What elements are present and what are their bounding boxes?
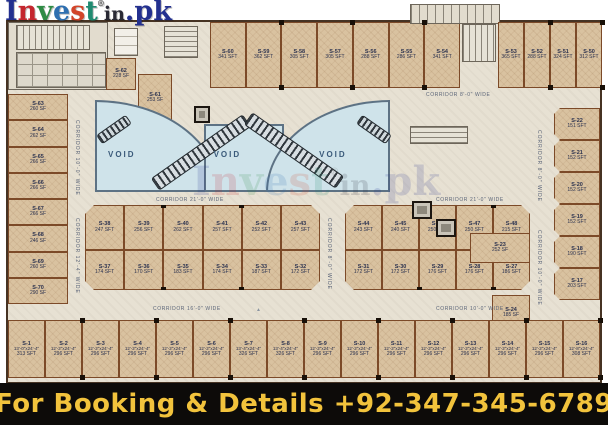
left-shop-column: S-63 260 SF S-64 262 SF S-65 266 SF S-66… bbox=[8, 94, 68, 304]
middle-band-left: S-38 247 SFT S-39 256 SFT S-40 262 SFT S… bbox=[85, 205, 320, 290]
shop-unit: S-5 12'-2"x24'-4" 296 SFT bbox=[156, 320, 193, 378]
shop-area: 305 SFT bbox=[290, 55, 309, 61]
shop-area: 172 SFT bbox=[354, 270, 373, 276]
logo-letter: . bbox=[125, 0, 134, 27]
shop-area: 365 SFT bbox=[501, 55, 520, 61]
shop-area: 296 SFT bbox=[91, 352, 110, 358]
shop-unit: S-41 257 SFT bbox=[203, 205, 242, 250]
shop-area: 326 SFT bbox=[276, 352, 295, 358]
shop-area: 172 SFT bbox=[391, 270, 410, 276]
logo-letter: I bbox=[5, 0, 18, 27]
void-label: VOID bbox=[108, 150, 136, 159]
shop-area: 257 SFT bbox=[291, 228, 310, 234]
shop-unit: S-51 324 SFT bbox=[550, 22, 576, 88]
shop-unit: S-66 266 SF bbox=[8, 173, 68, 199]
corridor-label: CORRIDOR 10'-0" WIDE bbox=[436, 306, 504, 312]
shop-area: 288 SFT bbox=[361, 55, 380, 61]
logo-letter: i bbox=[104, 3, 111, 25]
shop-unit: S-34 174 SFT bbox=[203, 250, 242, 290]
shop-unit: S-67 266 SF bbox=[8, 199, 68, 225]
shop-area: 296 SFT bbox=[461, 352, 480, 358]
shop-unit: S-6 12'-2"x24'-4" 296 SFT bbox=[193, 320, 230, 378]
shop-unit: S-19 152 SFT bbox=[554, 204, 600, 236]
shop-unit: S-63 260 SF bbox=[8, 94, 68, 120]
shop-area: 170 SFT bbox=[134, 270, 153, 276]
logo-letter: s bbox=[70, 0, 85, 27]
shop-area: 240 SFT bbox=[391, 228, 410, 234]
shop-area: 176 SFT bbox=[465, 270, 484, 276]
shop-unit: S-42 252 SFT bbox=[242, 205, 281, 250]
void-label: VOID bbox=[214, 150, 242, 159]
shop-unit: S-21 152 SFT bbox=[554, 140, 600, 172]
shop-area: 296 SFT bbox=[424, 352, 443, 358]
shop-area: 266 SF bbox=[30, 160, 46, 166]
shop-unit: S-10 12'-2"x24'-4" 296 SFT bbox=[341, 320, 378, 378]
shop-unit: S-38 247 SFT bbox=[85, 205, 124, 250]
corridor-label: CORRIDOR 12'-4" WIDE bbox=[74, 218, 80, 294]
shop-unit: S-37 174 SFT bbox=[85, 250, 124, 290]
shop-area: 290 SF bbox=[30, 291, 46, 297]
shop-unit: S-58 305 SFT bbox=[281, 22, 317, 88]
washrooms bbox=[16, 52, 106, 88]
shop-area: 341 SFT bbox=[218, 55, 237, 61]
shop-unit: S-36 170 SFT bbox=[124, 250, 163, 290]
shop-area: 174 SFT bbox=[213, 270, 232, 276]
shop-unit: S-1 13'-0"x24'-4" 313 SFT bbox=[8, 320, 45, 378]
shop-area: 257 SFT bbox=[213, 228, 232, 234]
right-shop-column: S-22 151 SFT S-21 152 SFT S-20 152 SFT S… bbox=[554, 108, 600, 300]
logo-letter: k bbox=[153, 0, 172, 27]
shop-area: 313 SFT bbox=[17, 352, 36, 358]
floor-plan: S-62 228 SF S-61 253 SF S-60 341 SFT S-5… bbox=[6, 20, 602, 384]
shop-unit: S-11 12'-2"x24'-4" 296 SFT bbox=[378, 320, 415, 378]
shop-unit: S-60 341 SFT bbox=[210, 22, 246, 88]
shop-unit: S-55 286 SFT bbox=[389, 22, 425, 88]
shop-area: 185 SF bbox=[503, 313, 519, 319]
shop-unit: S-23 252 SF bbox=[470, 233, 530, 263]
shop-area: 172 SFT bbox=[291, 270, 310, 276]
shop-unit: S-56 288 SFT bbox=[353, 22, 389, 88]
shop-area: 312 SFT bbox=[579, 55, 598, 61]
shop-area: 253 SF bbox=[147, 98, 163, 104]
shop-area: 190 SFT bbox=[567, 252, 586, 258]
shop-area: 256 SFT bbox=[134, 228, 153, 234]
void-label: VOID bbox=[319, 150, 347, 159]
shop-area: 296 SFT bbox=[202, 352, 221, 358]
shop-area: 151 SFT bbox=[567, 124, 586, 130]
shop-area: 260 SF bbox=[30, 265, 46, 271]
shop-unit: S-9 12'-2"x24'-4" 296 SFT bbox=[304, 320, 341, 378]
shop-unit: S-2 12'-2"x24'-4" 296 SFT bbox=[45, 320, 82, 378]
shop-unit: S-31 172 SFT bbox=[345, 250, 382, 290]
corridor-label: CORRIDOR 21'-0" WIDE bbox=[436, 197, 504, 203]
lift bbox=[436, 219, 456, 237]
north-arrow-icon: ▲ bbox=[256, 307, 261, 313]
shop-area: 296 SFT bbox=[165, 352, 184, 358]
top-shop-row: S-60 341 SFT S-59 362 SFT S-58 305 SFT S… bbox=[210, 22, 460, 88]
shop-unit: S-64 262 SF bbox=[8, 120, 68, 146]
shop-area: 252 SFT bbox=[252, 228, 271, 234]
shop-unit: S-15 12'-2"x24'-4" 296 SFT bbox=[526, 320, 563, 378]
staircase bbox=[16, 25, 90, 50]
shop-area: 326 SFT bbox=[239, 352, 258, 358]
shop-unit: S-20 152 SFT bbox=[554, 172, 600, 204]
service-room bbox=[114, 28, 138, 56]
shop-unit: S-57 305 SFT bbox=[317, 22, 353, 88]
logo-letter: n bbox=[18, 0, 38, 27]
top-shop-row-right: S-53 365 SFT S-52 288 SFT S-51 324 SFT S… bbox=[498, 22, 602, 88]
shop-unit: S-44 243 SFT bbox=[345, 205, 382, 250]
shop-area: 152 SFT bbox=[567, 156, 586, 162]
shop-area: 341 SFT bbox=[433, 55, 452, 61]
shop-unit: S-29 176 SFT bbox=[419, 250, 456, 290]
corridor-label: CORRIDOR 8'-0" WIDE bbox=[326, 218, 332, 290]
shop-area: 183 SFT bbox=[173, 270, 192, 276]
shop-unit: S-12 12'-2"x24'-4" 296 SFT bbox=[415, 320, 452, 378]
shop-area: 296 SFT bbox=[313, 352, 332, 358]
shop-unit: S-18 190 SFT bbox=[554, 236, 600, 268]
shop-area: 174 SFT bbox=[95, 270, 114, 276]
shop-area: 296 SFT bbox=[350, 352, 369, 358]
shop-area: 262 SFT bbox=[173, 228, 192, 234]
corridor-label: CORRIDOR 10'-0" WIDE bbox=[74, 120, 80, 196]
bottom-shop-row: S-1 13'-0"x24'-4" 313 SFT S-2 12'-2"x24'… bbox=[8, 320, 600, 378]
shop-unit: S-53 365 SFT bbox=[498, 22, 524, 88]
shop-unit: S-13 12'-2"x24'-4" 296 SFT bbox=[452, 320, 489, 378]
shop-unit: S-43 257 SFT bbox=[281, 205, 320, 250]
shop-area: 246 SF bbox=[30, 239, 46, 245]
shop-unit: S-35 183 SFT bbox=[163, 250, 202, 290]
logo-letter: v bbox=[37, 0, 53, 27]
shop-unit: S-17 203 SFT bbox=[554, 268, 600, 300]
shop-area: 228 SF bbox=[113, 74, 129, 80]
shop-area: 266 SF bbox=[30, 186, 46, 192]
shop-area: 288 SFT bbox=[527, 55, 546, 61]
lift bbox=[194, 106, 210, 123]
corridor-label: CORRIDOR 10'-0" WIDE bbox=[536, 230, 542, 306]
shop-unit: S-68 246 SF bbox=[8, 225, 68, 251]
shop-area: 243 SFT bbox=[354, 228, 373, 234]
shop-unit: S-62 228 SF bbox=[106, 58, 136, 90]
corridor-label: CORRIDOR 8'-0" WIDE bbox=[426, 92, 490, 98]
shop-area: 266 SF bbox=[30, 212, 46, 218]
shop-unit: S-14 12'-2"x24'-4" 296 SFT bbox=[489, 320, 526, 378]
shop-area: 260 SF bbox=[30, 107, 46, 113]
logo-letter: e bbox=[53, 0, 70, 27]
shop-unit: S-40 262 SFT bbox=[163, 205, 202, 250]
shop-area: 186 SFT bbox=[502, 270, 521, 276]
staircase bbox=[462, 24, 496, 62]
shop-area: 286 SFT bbox=[397, 55, 416, 61]
void-labels: VOIDVOIDVOID bbox=[108, 150, 347, 159]
shop-area: 362 SFT bbox=[254, 55, 273, 61]
shop-unit: S-50 312 SFT bbox=[576, 22, 602, 88]
shop-unit: S-3 12'-2"x24'-4" 296 SFT bbox=[82, 320, 119, 378]
corridor-label: CORRIDOR 8'-0" WIDE bbox=[536, 130, 542, 202]
shop-area: 203 SFT bbox=[567, 284, 586, 290]
staircase bbox=[410, 126, 468, 144]
shop-area: 305 SFT bbox=[325, 55, 344, 61]
shop-area: 308 SFT bbox=[572, 352, 591, 358]
shop-unit: S-8 13'-4"x24'-4" 326 SFT bbox=[267, 320, 304, 378]
shop-area: 176 SFT bbox=[428, 270, 447, 276]
shop-unit: S-33 187 SFT bbox=[242, 250, 281, 290]
shop-area: 296 SFT bbox=[128, 352, 147, 358]
logo-letter: p bbox=[134, 0, 153, 27]
shop-unit: S-30 172 SFT bbox=[382, 250, 419, 290]
staircase bbox=[164, 26, 198, 58]
shop-unit: S-32 172 SFT bbox=[281, 250, 320, 290]
corridor-label: CORRIDOR 16'-0" WIDE bbox=[153, 306, 221, 312]
shop-area: 296 SFT bbox=[54, 352, 73, 358]
shop-unit: S-22 151 SFT bbox=[554, 108, 600, 140]
shop-area: 296 SFT bbox=[387, 352, 406, 358]
banner-text: For Booking & Details +92-347-345-6789 bbox=[0, 389, 608, 419]
shop-area: 262 SF bbox=[30, 134, 46, 140]
shop-unit: S-16 12'-8"x24'-4" 308 SFT bbox=[563, 320, 600, 378]
corridor-label: CORRIDOR 21'-0" WIDE bbox=[156, 197, 224, 203]
shop-unit: S-39 256 SFT bbox=[124, 205, 163, 250]
shop-unit: S-52 288 SFT bbox=[524, 22, 550, 88]
shop-area: 152 SFT bbox=[567, 188, 586, 194]
shop-unit: S-59 362 SFT bbox=[246, 22, 282, 88]
shop-unit: S-65 266 SF bbox=[8, 147, 68, 173]
shop-area: 324 SFT bbox=[553, 55, 572, 61]
shop-area: 252 SF bbox=[492, 248, 508, 254]
shop-unit: S-70 290 SF bbox=[8, 278, 68, 304]
shop-unit: S-54 341 SFT bbox=[424, 22, 460, 88]
booking-banner: For Booking & Details +92-347-345-6789 bbox=[0, 383, 608, 425]
shop-area: 152 SFT bbox=[567, 220, 586, 226]
logo-letter: n bbox=[111, 3, 125, 25]
shop-area: 187 SFT bbox=[252, 270, 271, 276]
shop-area: 247 SFT bbox=[95, 228, 114, 234]
lift bbox=[412, 201, 432, 219]
shop-unit: S-69 260 SF bbox=[8, 252, 68, 278]
brand-logo: Invest®in.pk bbox=[5, 0, 172, 27]
shop-area: 296 SFT bbox=[535, 352, 554, 358]
shop-unit: S-4 12'-2"x24'-4" 296 SFT bbox=[119, 320, 156, 378]
shop-unit: S-7 13'-4"x24'-4" 326 SFT bbox=[230, 320, 267, 378]
shop-area: 296 SFT bbox=[498, 352, 517, 358]
